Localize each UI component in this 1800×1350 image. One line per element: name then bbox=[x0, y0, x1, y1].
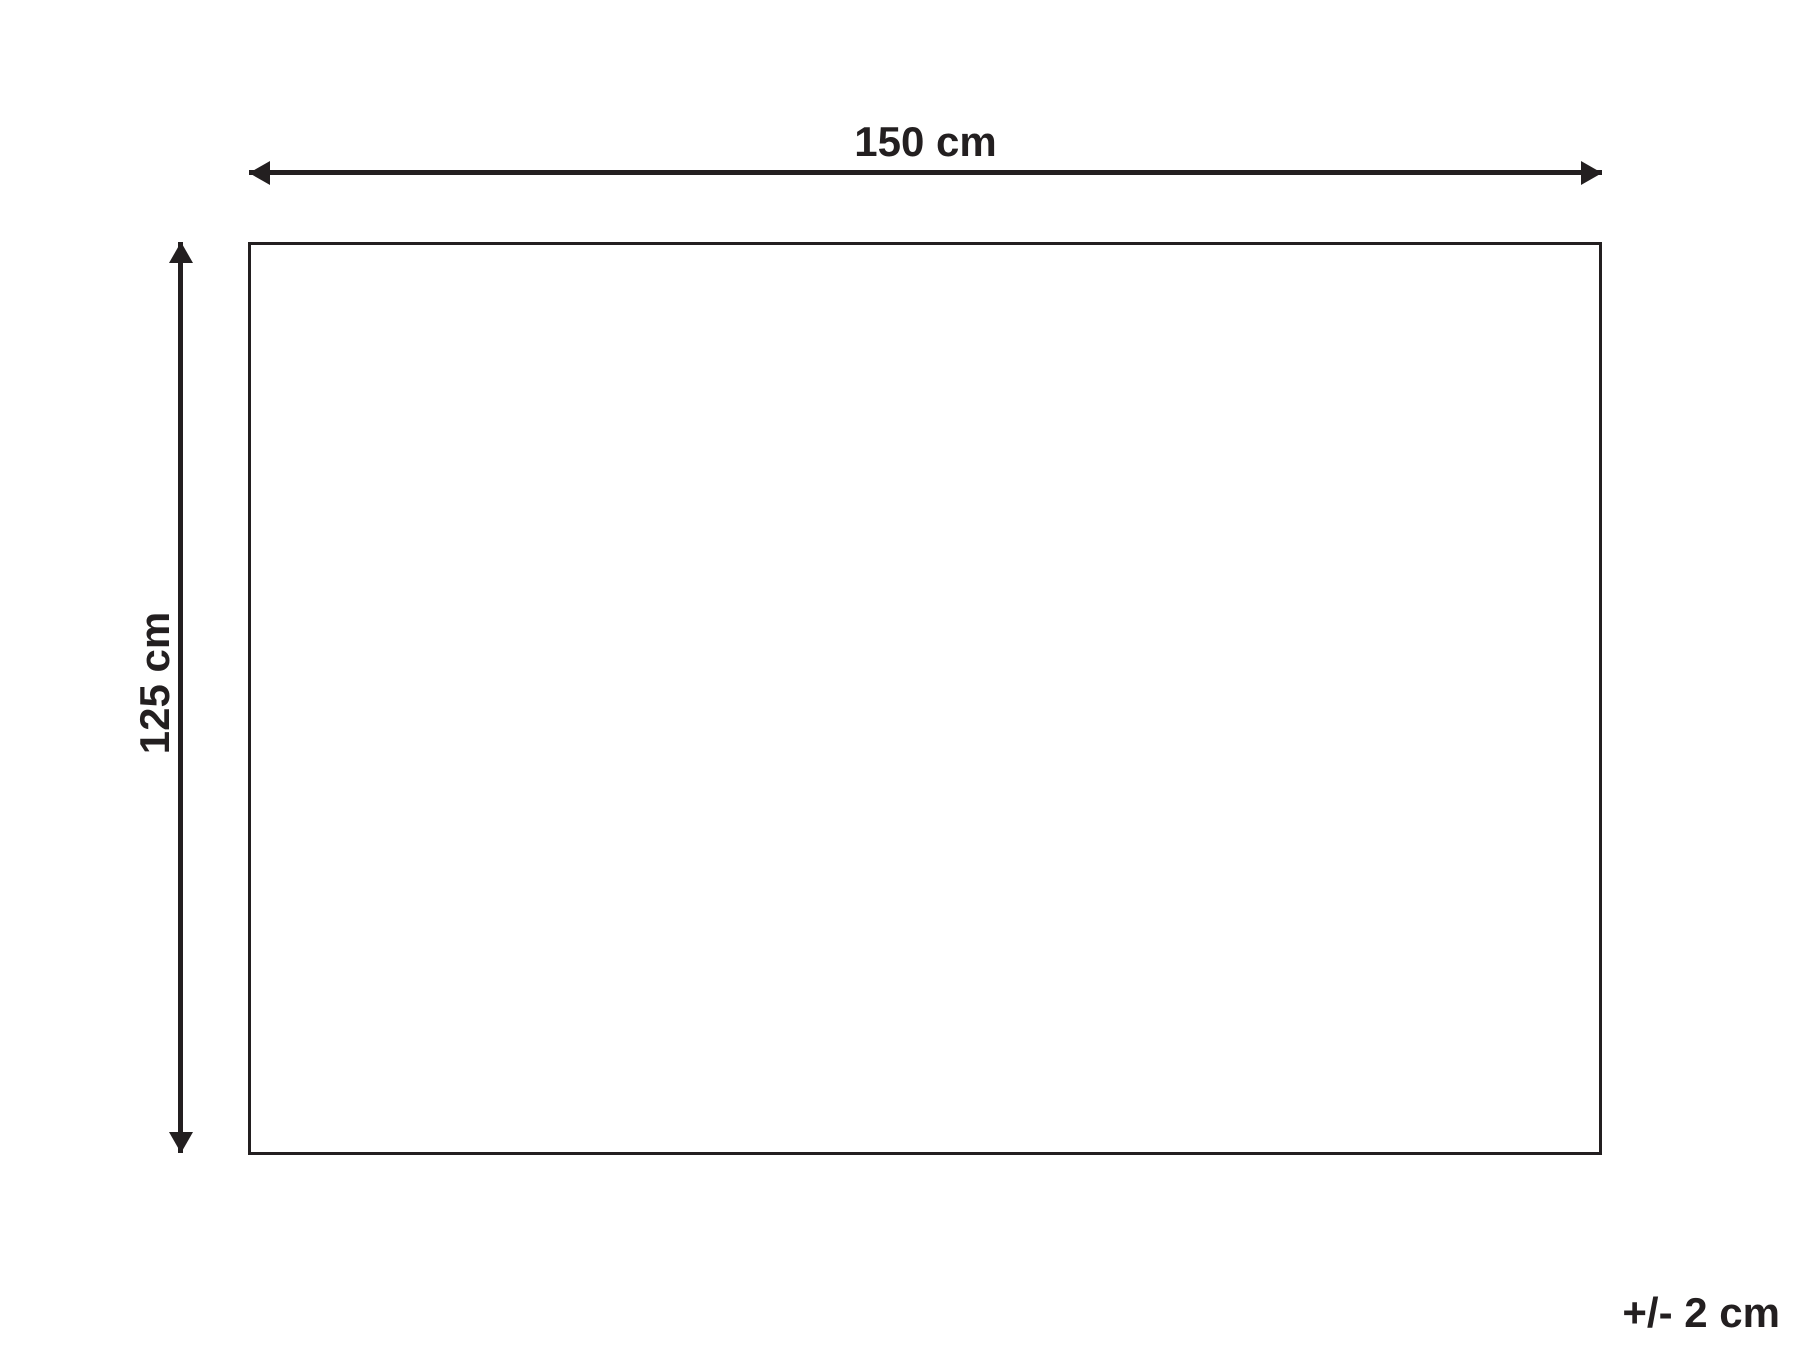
width-dimension-arrow bbox=[249, 170, 1602, 175]
height-dimension-label: 125 cm bbox=[134, 583, 176, 783]
product-outline-rectangle bbox=[248, 242, 1602, 1155]
width-dimension-label: 150 cm bbox=[249, 121, 1602, 163]
tolerance-label: +/- 2 cm bbox=[1622, 1292, 1780, 1334]
dimension-diagram: 150 cm 125 cm +/- 2 cm bbox=[0, 0, 1800, 1350]
height-dimension-arrow bbox=[178, 242, 183, 1153]
